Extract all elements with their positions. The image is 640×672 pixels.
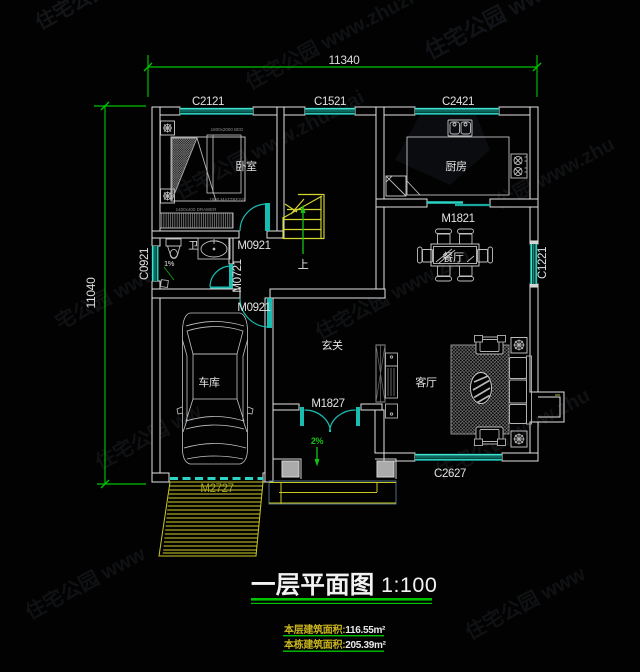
- svg-text:卫: 卫: [188, 241, 198, 252]
- svg-text:厨房: 厨房: [445, 160, 467, 173]
- svg-text:车库: 车库: [198, 375, 220, 389]
- svg-text:本栋建筑面积:205.39m²: 本栋建筑面积:205.39m²: [284, 638, 387, 651]
- svg-text:餐厅: 餐厅: [442, 250, 464, 264]
- svg-text:客厅: 客厅: [415, 375, 437, 389]
- svg-text:M0921: M0921: [237, 240, 270, 252]
- svg-text:M1821: M1821: [441, 213, 474, 225]
- svg-text:1800x2000 BED: 1800x2000 BED: [211, 127, 245, 132]
- svg-text:玄关: 玄关: [321, 338, 343, 352]
- svg-text:本层建筑面积:116.55m²: 本层建筑面积:116.55m²: [284, 623, 386, 636]
- svg-text:11040: 11040: [84, 277, 98, 309]
- svg-text:1:100: 1:100: [381, 573, 437, 597]
- svg-text:1800 MATTRESS: 1800 MATTRESS: [209, 197, 244, 202]
- svg-text:1%: 1%: [164, 259, 175, 268]
- svg-text:M0721: M0721: [232, 259, 244, 292]
- svg-text:C2121: C2121: [192, 96, 224, 108]
- svg-text:上: 上: [298, 258, 309, 271]
- svg-text:卧室: 卧室: [235, 159, 257, 173]
- svg-text:11340: 11340: [329, 53, 361, 67]
- svg-text:C1521: C1521: [314, 96, 346, 108]
- svg-text:M1827: M1827: [311, 398, 344, 410]
- svg-text:2%: 2%: [311, 436, 324, 446]
- svg-text:C2627: C2627: [434, 468, 466, 480]
- svg-text:1400x400 DRAWER: 1400x400 DRAWER: [176, 207, 218, 212]
- svg-text:一层平面图: 一层平面图: [251, 572, 375, 599]
- svg-text:C2421: C2421: [442, 96, 474, 108]
- svg-text:M0921: M0921: [237, 302, 270, 314]
- svg-text:C1221: C1221: [537, 247, 549, 279]
- svg-text:M2727: M2727: [200, 483, 233, 495]
- svg-text:C0921: C0921: [139, 248, 151, 280]
